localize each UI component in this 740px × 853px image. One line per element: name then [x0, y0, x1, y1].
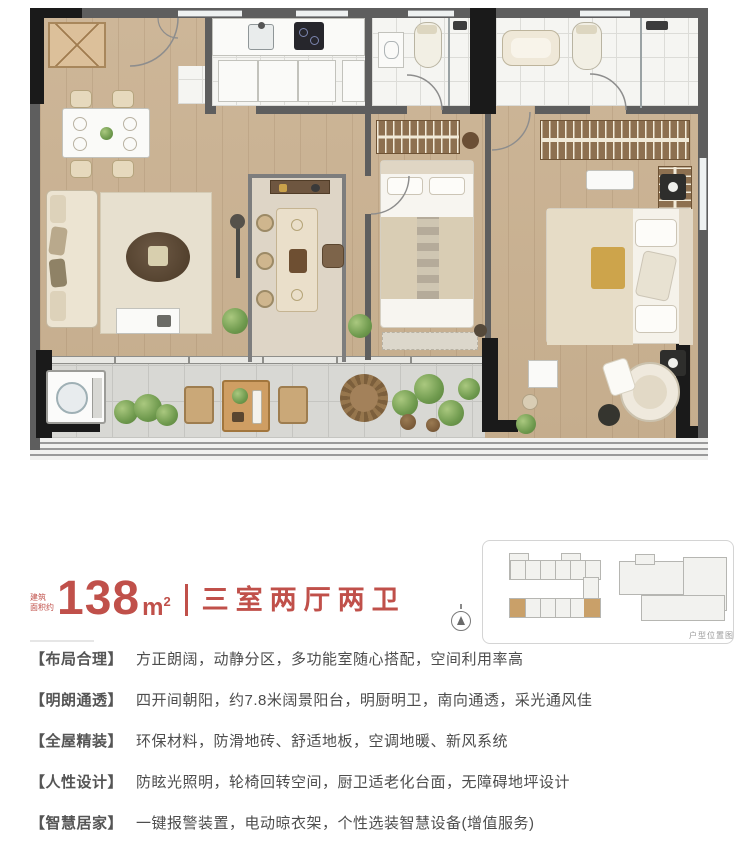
feature-desc: 四开间朝阳，约7.8米阔景阳台，明厨明卫，南向通透，采光通风佳 [136, 692, 592, 709]
title-divider [185, 584, 188, 616]
feature-tag: 【全屋精装】 [30, 733, 123, 750]
feature-list: 【布局合理】方正朗阔，动静分区，多功能室随心搭配，空间利用率高 【明朗通透】四开… [30, 648, 720, 853]
area-prefix: 建筑 面积约 [30, 593, 54, 613]
feature-tag: 【智慧居家】 [30, 815, 123, 832]
compass-tick [460, 604, 462, 609]
layout-text: 三室两厅两卫 [202, 578, 406, 617]
floorplan [30, 8, 708, 460]
feature-item: 【全屋精装】环保材料，防滑地砖、舒适地板，空调地暖、新风系统 [30, 730, 720, 751]
compass-circle [451, 611, 471, 631]
area-unit: m2 [142, 595, 171, 620]
area-prefix-line2: 面积约 [30, 603, 54, 613]
feature-item: 【明朗通透】四开间朝阳，约7.8米阔景阳台，明厨明卫，南向通透，采光通风佳 [30, 689, 720, 710]
door-arcs [30, 8, 708, 460]
feature-desc: 一键报警装置，电动晾衣架，个性选装智慧设备(增值服务) [136, 815, 535, 832]
feature-desc: 环保材料，防滑地砖、舒适地板，空调地暖、新风系统 [136, 733, 508, 750]
title-underline [30, 640, 94, 642]
feature-item: 【智慧居家】一键报警装置，电动晾衣架，个性选装智慧设备(增值服务) [30, 812, 720, 833]
title-block: 建筑 面积约 138 m2 三室两厅两卫 [30, 568, 406, 620]
feature-item: 【人性设计】防眩光照明，轮椅回转空间，厨卫适老化台面，无障碍地坪设计 [30, 771, 720, 792]
locator-building-right-notch [635, 554, 655, 565]
area-value: 138 [57, 577, 140, 620]
compass [450, 604, 472, 634]
locator-caption: 户型位置图 [640, 630, 734, 641]
locator-unit-highlight [584, 599, 600, 617]
locator-building-right [619, 561, 689, 595]
area-sup: 2 [163, 594, 170, 609]
feature-desc: 方正朗阔，动静分区，多功能室随心搭配，空间利用率高 [136, 651, 524, 668]
locator-map [482, 540, 734, 644]
area-prefix-line1: 建筑 [30, 593, 54, 603]
feature-tag: 【布局合理】 [30, 651, 123, 668]
feature-item: 【布局合理】方正朗阔，动静分区，多功能室随心搭配，空间利用率高 [30, 648, 720, 669]
feature-tag: 【明朗通透】 [30, 692, 123, 709]
locator-building-right-bottom [641, 595, 725, 621]
feature-tag: 【人性设计】 [30, 774, 123, 791]
locator-unit-highlight [510, 599, 525, 617]
feature-desc: 防眩光照明，轮椅回转空间，厨卫适老化台面，无障碍地坪设计 [136, 774, 570, 791]
